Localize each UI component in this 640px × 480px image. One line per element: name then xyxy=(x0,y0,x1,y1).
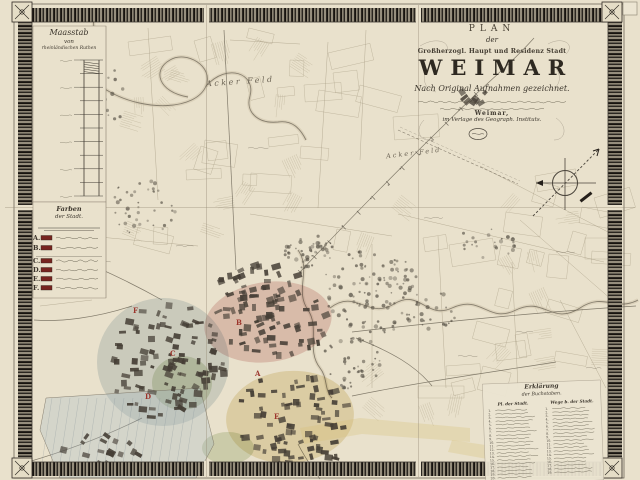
district-legend-subtitle: der Stadt. xyxy=(34,215,104,221)
scale-unit: rheinländischen Ruthen xyxy=(28,47,110,52)
title-subtitle: Nach Original Aufnahmen gezeichnet. xyxy=(407,85,577,93)
map-letter-e: E xyxy=(274,412,279,421)
map-sheet: 1.2.3.4.5.6.7.8.9.10.11.12.13.14.15.16.1… xyxy=(0,0,640,480)
legend-letter-b: B. xyxy=(33,244,41,252)
scale-title: Maasstab xyxy=(34,29,104,37)
imprint-publisher: im Verlage des Geograph. Instituts. xyxy=(407,118,577,124)
letters-legend-col2-header: Wege b. der Stadt. xyxy=(543,399,601,405)
map-letter-f: F xyxy=(133,306,138,315)
letters-legend-panel: Erklärung der Buchstaben. Pl. der Stadt.… xyxy=(482,380,603,480)
scale-prefix: von xyxy=(34,40,104,46)
legend-letter-d: D. xyxy=(33,266,41,274)
legend-letter-c: C. xyxy=(33,257,40,265)
title-city-name: WEIMAR xyxy=(402,57,582,79)
map-letter-a: A xyxy=(255,369,260,378)
legend-letter-a: A. xyxy=(33,234,40,242)
letters-legend-col1-header: Pl. der Stadt. xyxy=(485,401,541,407)
legend-letter-f: F. xyxy=(33,284,39,292)
map-letter-c: C xyxy=(170,349,176,358)
map-letter-b: B xyxy=(236,318,242,327)
title-der: der xyxy=(407,37,577,44)
title-plan: PLAN xyxy=(407,25,577,34)
map-letter-d: D xyxy=(145,392,151,401)
district-legend-title: Farben xyxy=(34,206,104,213)
legend-letter-e: E. xyxy=(33,275,40,283)
